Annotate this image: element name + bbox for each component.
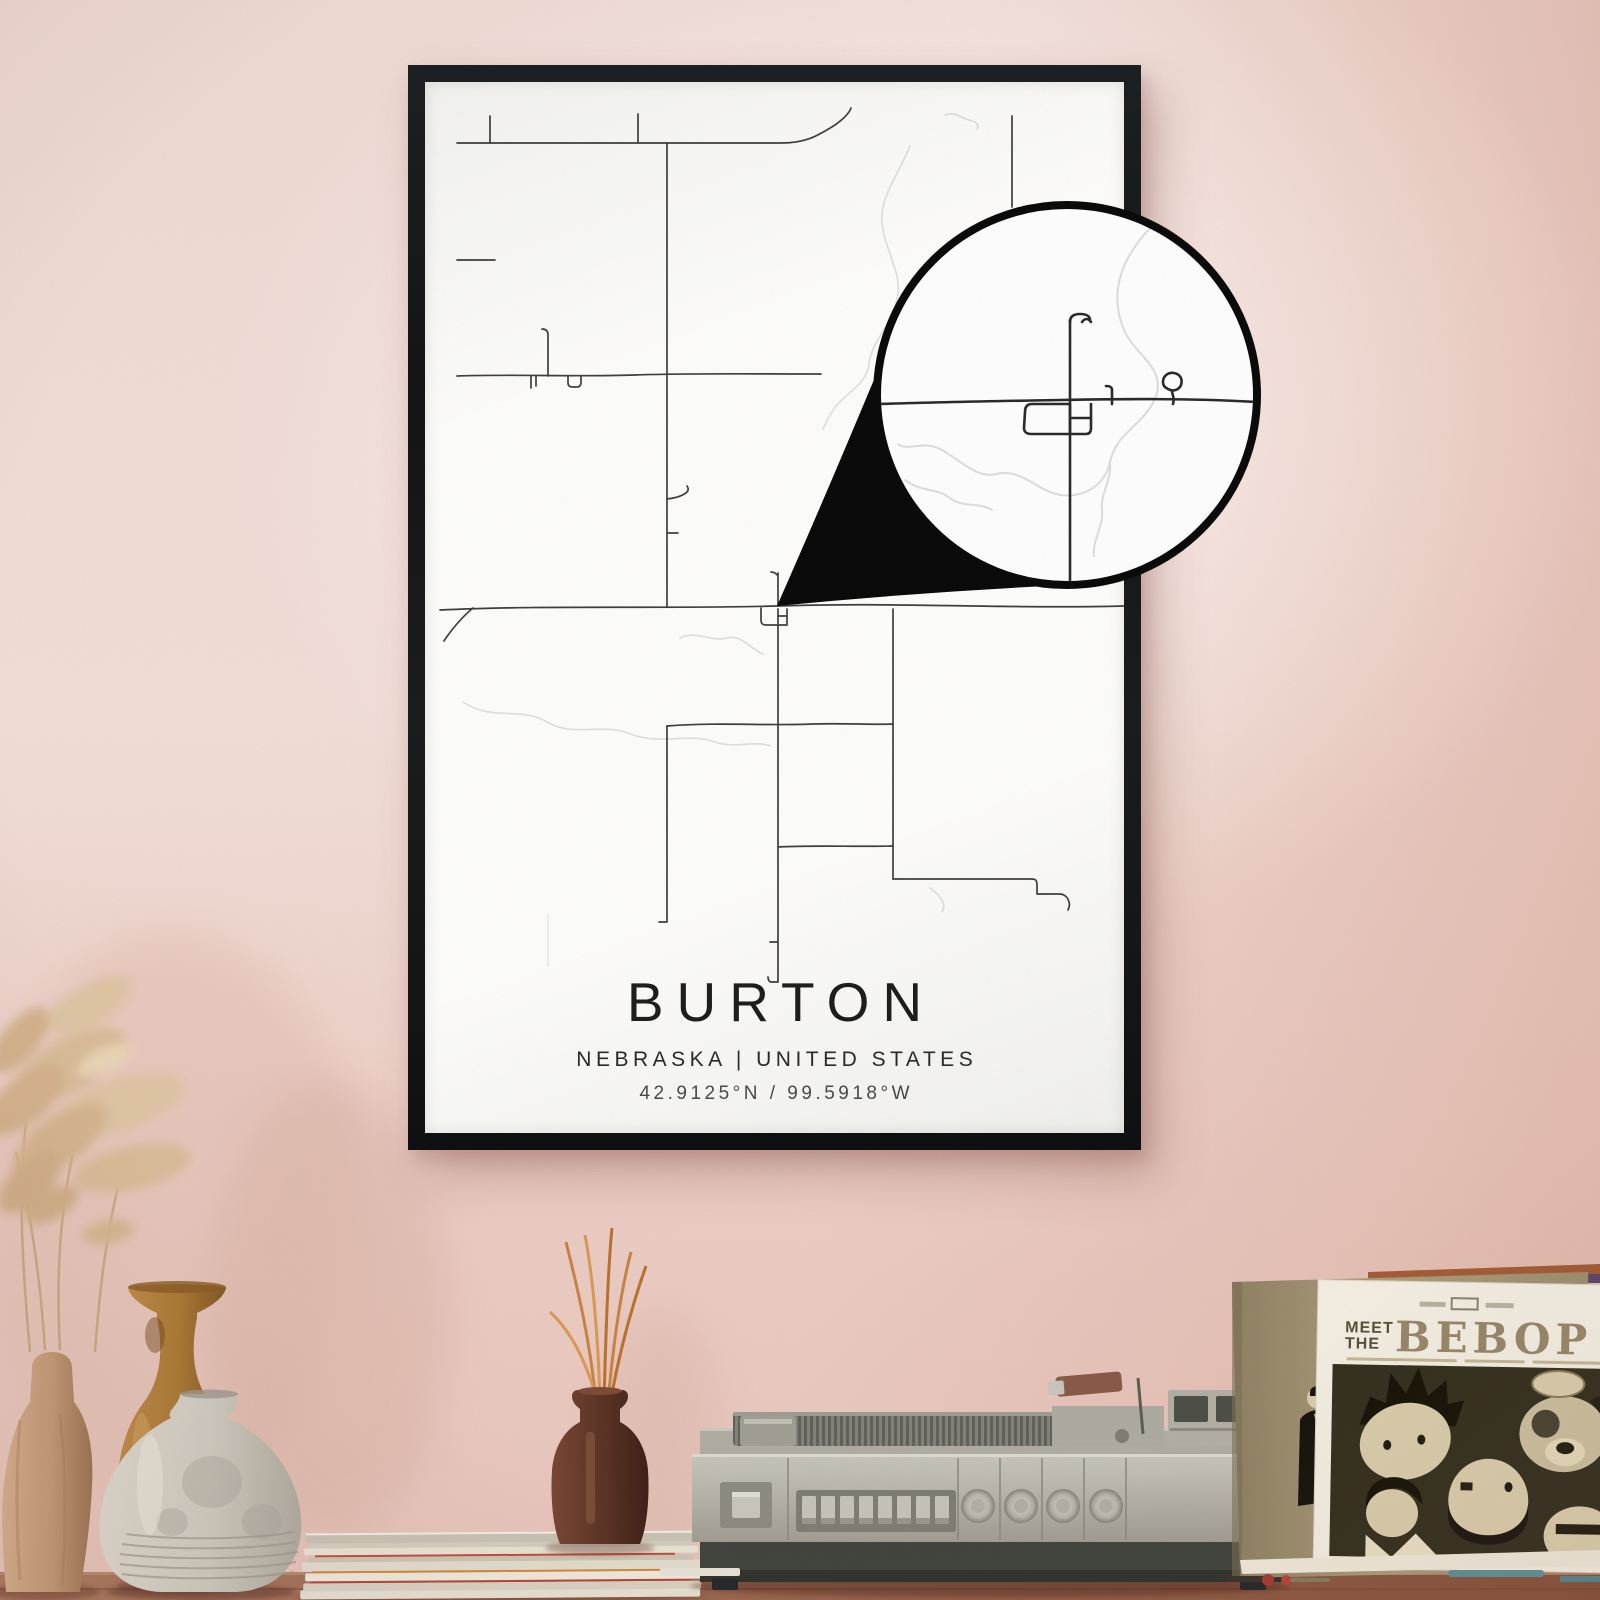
album-title: BEBOP [1395,1312,1593,1364]
tonearm [1047,1371,1164,1446]
map-poster: BURTON NEBRASKA | UNITED STATES 42.9125°… [425,82,1124,1133]
room-scene: MEET THE BEBOP [0,0,1600,1600]
picture-frame: BURTON NEBRASKA | UNITED STATES 42.9125°… [408,65,1141,1150]
poster-text-block: BURTON NEBRASKA | UNITED STATES 42.9125°… [425,970,1124,1105]
album-prefix-line2: THE [1345,1335,1380,1353]
power-button [720,1482,772,1528]
poster-subtitle: NEBRASKA | UNITED STATES [425,1048,1124,1072]
record-albums: MEET THE BEBOP [1232,1264,1600,1582]
preset-buttons [796,1490,956,1532]
bebop-album: MEET THE BEBOP [1313,1280,1600,1573]
teal-record-edge [1448,1570,1544,1577]
magazine-stack [295,1531,705,1600]
city-map [425,82,1124,1133]
sheet-under-player [660,1568,740,1576]
map-rivers [463,114,978,966]
record-player [660,1371,1290,1597]
poster-title: BURTON [425,970,1124,1034]
map-roads [440,108,1124,982]
poster-coordinates: 42.9125°N / 99.5918°W [425,1083,1124,1105]
